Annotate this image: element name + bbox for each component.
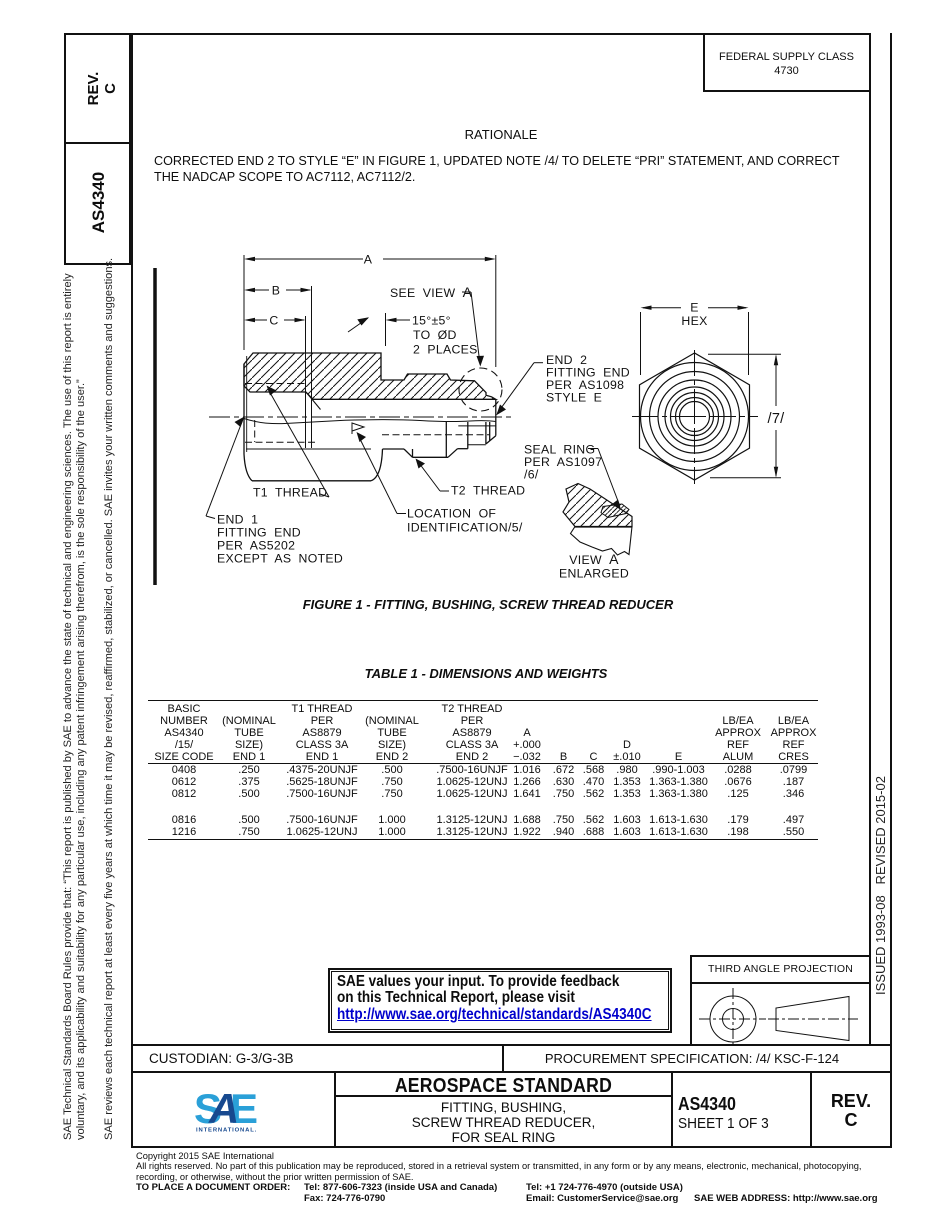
svg-text:PER AS5202: PER AS5202	[217, 539, 295, 553]
svg-text:T1 THREAD: T1 THREAD	[253, 486, 327, 500]
svg-text:EXCEPT AS NOTED: EXCEPT AS NOTED	[217, 552, 343, 566]
svg-text:STYLE E: STYLE E	[546, 391, 602, 405]
svg-text:T2 THREAD: T2 THREAD	[451, 484, 525, 498]
svg-text:FITTING END: FITTING END	[217, 526, 301, 540]
svg-text:2 PLACES: 2 PLACES	[413, 343, 478, 357]
svg-text:A: A	[364, 253, 373, 267]
svg-text:A: A	[208, 1090, 239, 1132]
svg-text:VIEW A: VIEW A	[569, 551, 619, 567]
svg-text:HEX: HEX	[681, 314, 707, 328]
svg-text:LOCATION OF: LOCATION OF	[407, 507, 496, 521]
svg-text:ENLARGED: ENLARGED	[559, 567, 629, 581]
svg-text:TO ØD: TO ØD	[413, 328, 457, 342]
svg-text:INTERNATIONAL.: INTERNATIONAL.	[196, 1128, 257, 1134]
svg-text:/7/: /7/	[767, 411, 785, 427]
svg-text:B: B	[272, 284, 281, 298]
svg-text:END 1: END 1	[217, 513, 258, 527]
svg-text:E: E	[690, 301, 699, 315]
svg-text:IDENTIFICATION/5/: IDENTIFICATION/5/	[407, 521, 523, 535]
svg-text:/6/: /6/	[524, 468, 539, 482]
svg-text:SEE VIEW A: SEE VIEW A	[390, 284, 473, 300]
svg-text:15°±5°: 15°±5°	[412, 314, 451, 328]
svg-text:C: C	[269, 314, 278, 328]
